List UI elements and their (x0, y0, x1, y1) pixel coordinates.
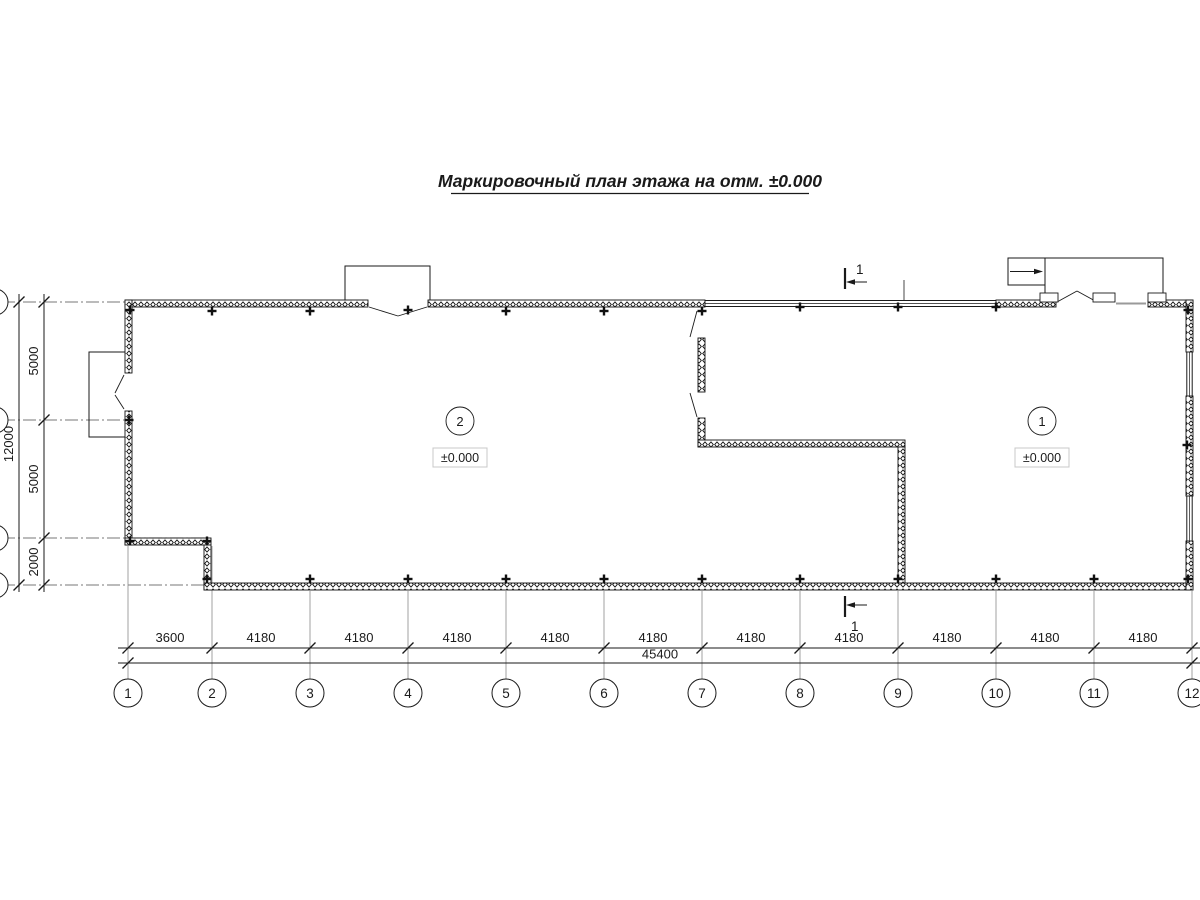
dim-bottom-segment: 4180 (835, 630, 864, 645)
room-number: 2 (456, 414, 463, 429)
axis-bubble: 1 (114, 679, 142, 707)
dim-left-segment: 2000 (26, 548, 41, 577)
dim-bottom-segment: 4180 (639, 630, 668, 645)
dim-left-segment: 5000 (26, 465, 41, 494)
walls (125, 300, 1193, 590)
page-title: Маркировочный план этажа на отм. ±0.000 (438, 171, 822, 191)
dim-bottom-segment: 4180 (933, 630, 962, 645)
left-dimensions: 12000 5000 5000 2000 (1, 294, 50, 592)
room-elevation: ±0.000 (1023, 451, 1061, 465)
wall-segment (698, 440, 905, 447)
section-mark-top: 1 (845, 262, 867, 289)
bottom-dimensions: 3600 4180 4180 4180 4180 4180 4180 4180 … (118, 630, 1200, 669)
wall-segment (428, 300, 705, 307)
svg-text:8: 8 (796, 686, 804, 701)
drawing-sheet: Маркировочный план этажа на отм. ±0.000 (0, 0, 1200, 900)
room-label-1: 1 ±0.000 (1015, 407, 1069, 467)
room-number: 1 (1038, 414, 1045, 429)
dim-left-segment: 5000 (26, 347, 41, 376)
axis-bubble: 10 (982, 679, 1010, 707)
dim-bottom-segment: 4180 (1129, 630, 1158, 645)
axis-bubble: 6 (590, 679, 618, 707)
dim-bottom-segment: 4180 (1031, 630, 1060, 645)
axis-bubbles-bottom: 1 2 3 4 5 6 7 8 (114, 679, 1200, 707)
svg-text:10: 10 (988, 686, 1003, 701)
axis-bubble: 9 (884, 679, 912, 707)
svg-text:12: 12 (1184, 686, 1199, 701)
axis-bubble: 4 (394, 679, 422, 707)
svg-text:9: 9 (894, 686, 902, 701)
wall-segment (698, 338, 705, 392)
wall-segment (125, 538, 211, 545)
svg-text:11: 11 (1087, 686, 1101, 701)
axis-bubble: 11 (1080, 679, 1108, 707)
dim-bottom-segment: 3600 (156, 630, 185, 645)
wall-segment (125, 300, 368, 307)
section-arrow-icon (846, 279, 855, 285)
porch-top-right (1008, 258, 1163, 300)
stair-direction-arrow (1034, 269, 1043, 275)
section-arrow-icon (846, 602, 855, 608)
drawing-title: Маркировочный план этажа на отм. ±0.000 (438, 171, 822, 194)
svg-text:7: 7 (698, 686, 706, 701)
dim-bottom-segment: 4180 (345, 630, 374, 645)
axis-bubble: 8 (786, 679, 814, 707)
svg-text:2: 2 (208, 686, 216, 701)
dim-bottom-total: 45400 (642, 647, 678, 662)
dim-bottom-segment: 4180 (247, 630, 276, 645)
dim-bottom-segment: 4180 (541, 630, 570, 645)
axis-bubble: 12 (1178, 679, 1200, 707)
section-mark-bottom: 1 (845, 596, 867, 634)
room-label-2: 2 ±0.000 (433, 407, 487, 467)
svg-text:1: 1 (124, 686, 132, 701)
dim-bottom-segment: 4180 (737, 630, 766, 645)
axis-bubble: 2 (198, 679, 226, 707)
axis-bubble: 3 (296, 679, 324, 707)
wall-segment (204, 583, 1193, 590)
wall-segment (125, 411, 132, 545)
floor-plan-svg: Маркировочный план этажа на отм. ±0.000 (0, 0, 1200, 900)
svg-text:3: 3 (306, 686, 314, 701)
axis-bubble: 7 (688, 679, 716, 707)
svg-text:6: 6 (600, 686, 608, 701)
svg-text:4: 4 (404, 686, 412, 701)
svg-text:5: 5 (502, 686, 510, 701)
wall-segment (898, 447, 905, 583)
porch-top-left (345, 266, 430, 300)
axis-bubble: 5 (492, 679, 520, 707)
dim-left-total: 12000 (1, 426, 16, 462)
column-marks (125, 303, 1193, 584)
room-elevation: ±0.000 (441, 451, 479, 465)
porch-left-entrance (89, 352, 125, 437)
section-label: 1 (856, 262, 864, 277)
dim-bottom-segment: 4180 (443, 630, 472, 645)
window-bands (705, 280, 1192, 541)
